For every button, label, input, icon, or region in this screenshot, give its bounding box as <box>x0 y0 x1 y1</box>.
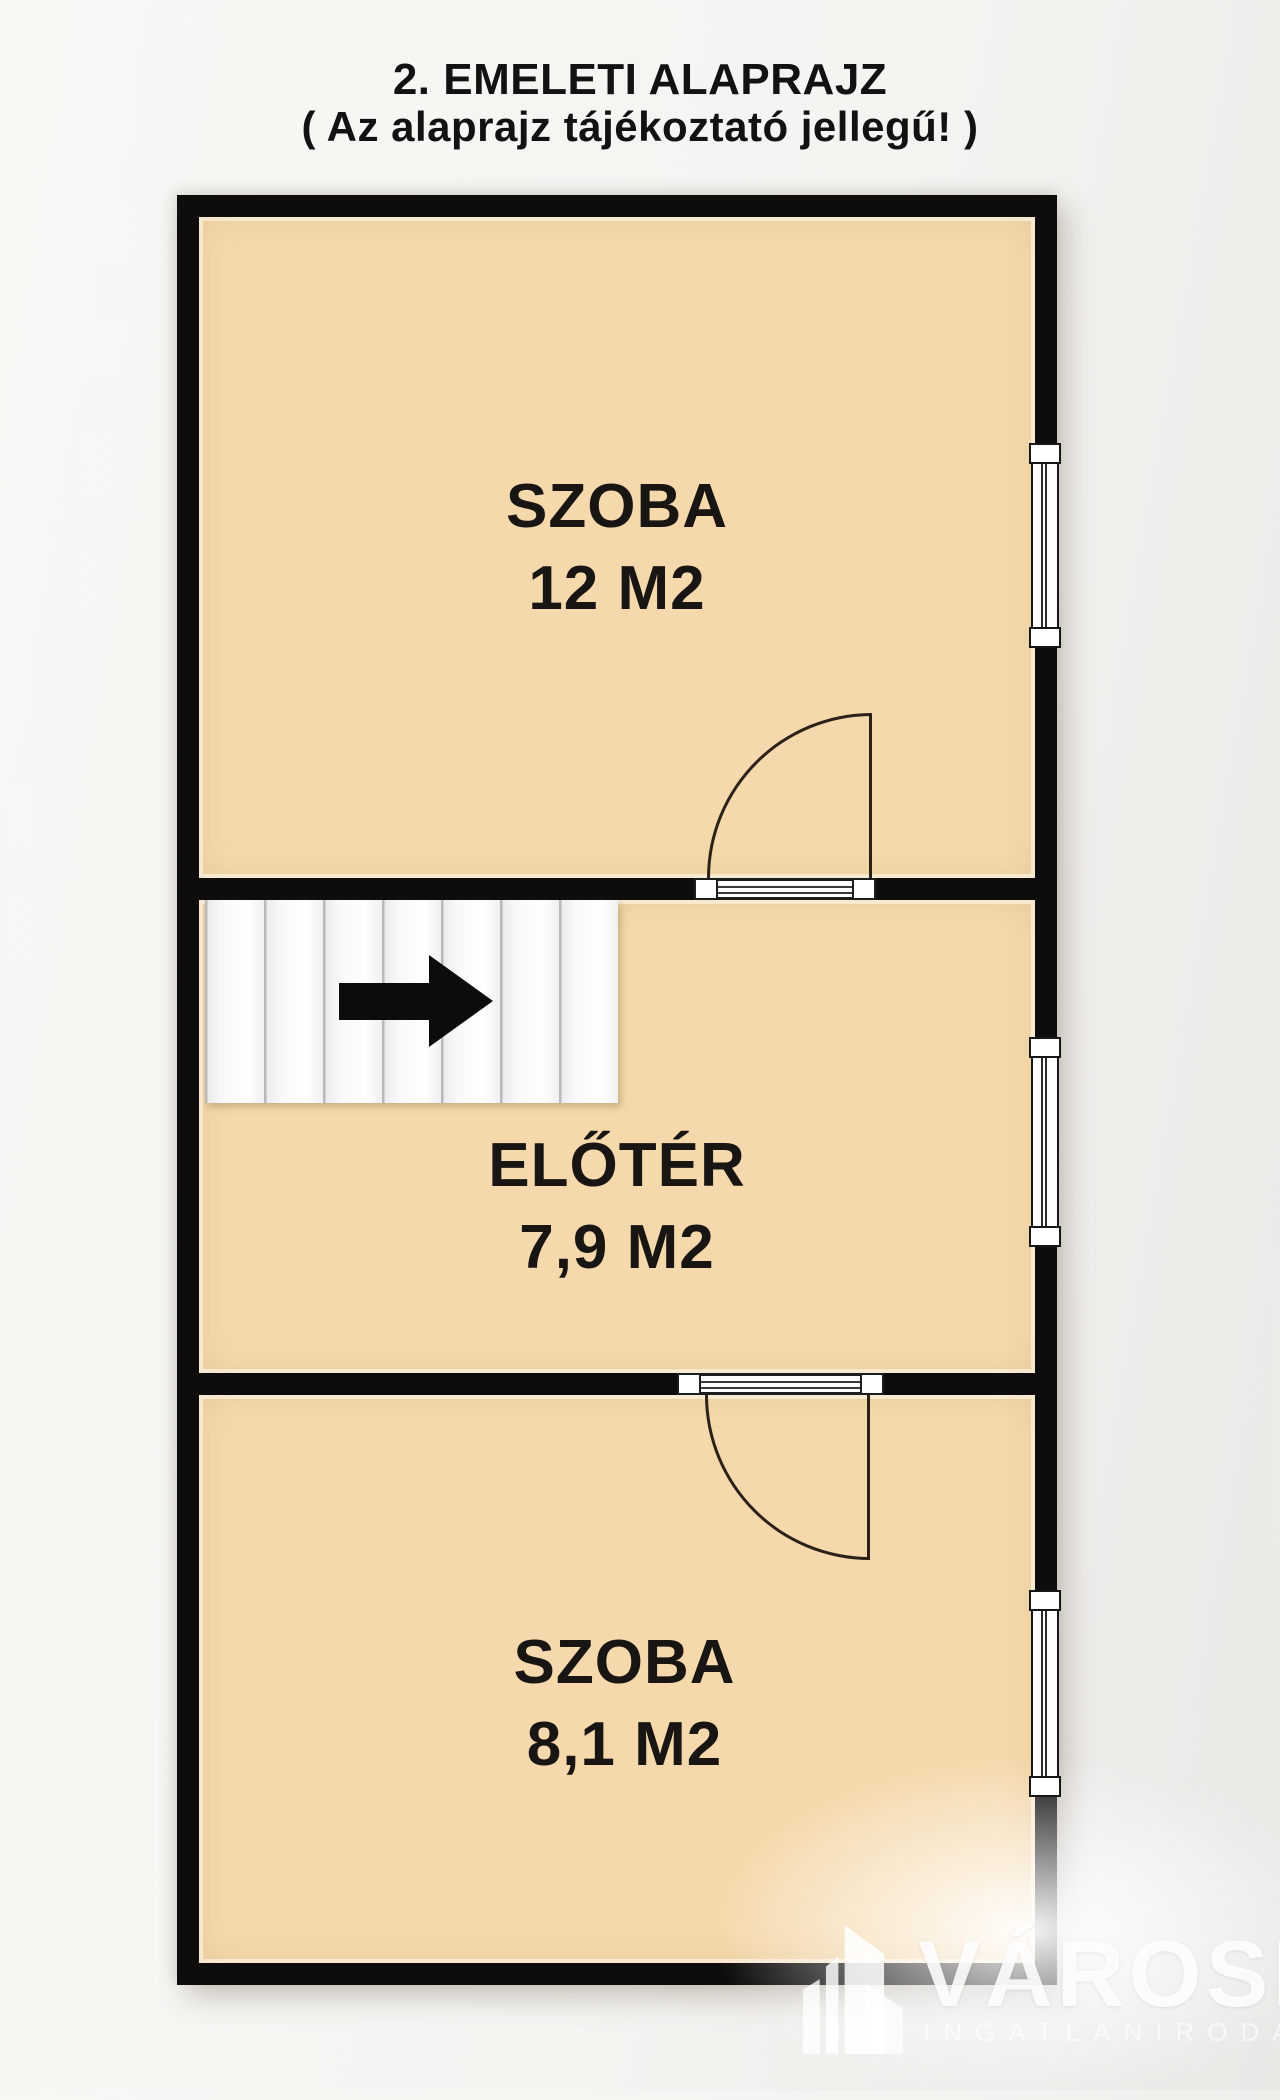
threshold-cap <box>677 1373 701 1395</box>
title-line2: ( Az alaprajz tájékoztató jellegű! ) <box>0 104 1280 150</box>
wall-top-left-segment <box>199 878 695 900</box>
floor-plan: SZOBA 12 M2 ELŐTÉR 7,9 M2 SZOBA 8,1 M2 <box>177 195 1057 1985</box>
varosi-buildings-icon <box>800 1923 910 2058</box>
window-cap <box>1029 1776 1061 1797</box>
room-name: SZOBA <box>214 1622 1035 1704</box>
wall-bottom-right-segment <box>883 1373 1035 1395</box>
floor-plan-page: 2. EMELETI ALAPRAJZ ( Az alaprajz tájéko… <box>0 0 1280 2090</box>
window-cap <box>1029 627 1061 648</box>
window-cap <box>1029 1226 1061 1247</box>
window-icon-bottom <box>1031 1590 1059 1797</box>
watermark-brand-text: VÁROSI <box>918 1927 1280 2021</box>
room-area: 7,9 M2 <box>199 1207 1035 1289</box>
room-name: SZOBA <box>506 466 728 548</box>
room-name: ELŐTÉR <box>199 1125 1035 1207</box>
window-cap <box>1029 443 1061 464</box>
room-szoba-top: SZOBA 12 M2 <box>199 217 1035 878</box>
door-threshold-bottom <box>678 1373 883 1395</box>
page-title: 2. EMELETI ALAPRAJZ ( Az alaprajz tájéko… <box>0 56 1280 150</box>
floor-plan-interior: SZOBA 12 M2 ELŐTÉR 7,9 M2 SZOBA 8,1 M2 <box>199 217 1035 1963</box>
watermark-logo: VÁROSI INGATLANIRODA <box>790 1915 1280 2085</box>
threshold-cap <box>852 878 876 900</box>
stairs-direction-arrow-icon <box>339 983 431 1020</box>
window-cap <box>1029 1037 1061 1058</box>
title-line1: 2. EMELETI ALAPRAJZ <box>0 56 1280 104</box>
wall-top-right-segment <box>875 878 1035 900</box>
watermark-tagline-text: INGATLANIRODA <box>923 2017 1280 2048</box>
room-area: 12 M2 <box>506 548 728 630</box>
window-cap <box>1029 1590 1061 1611</box>
door-threshold-top <box>695 878 875 900</box>
threshold-cap <box>694 878 718 900</box>
stairs-direction-arrow-head-icon <box>429 955 493 1047</box>
threshold-cap <box>860 1373 884 1395</box>
wall-bottom-left-segment <box>199 1373 678 1395</box>
window-icon-top <box>1031 443 1059 648</box>
window-icon-middle <box>1031 1037 1059 1247</box>
room-label: SZOBA 12 M2 <box>506 466 728 630</box>
room-label: ELŐTÉR 7,9 M2 <box>199 1125 1035 1289</box>
